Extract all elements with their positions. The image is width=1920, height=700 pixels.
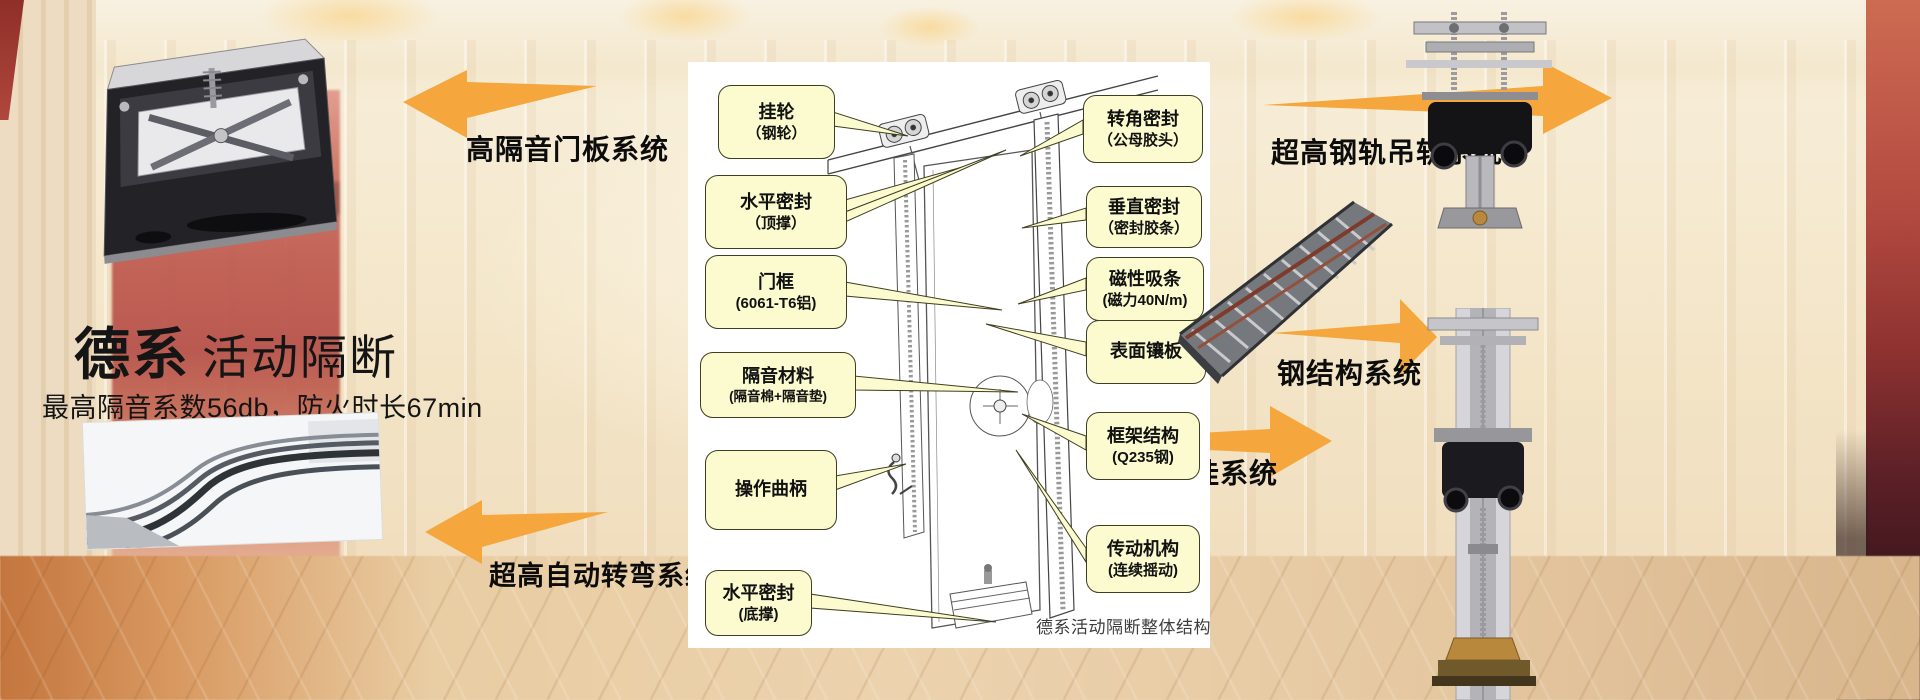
callout-text: (连续摇动) <box>1108 561 1178 581</box>
callout-text: 挂轮 <box>759 101 795 124</box>
diagram-caption: 德系活动隔断整体结构 <box>1036 613 1212 638</box>
callout-text: (Q235钢) <box>1112 448 1174 468</box>
callout-corner-seal: 转角密封 （公母胶头） <box>1083 95 1203 163</box>
alu-rail-hanger-photo <box>1398 308 1566 700</box>
callout-text: （钢轮） <box>746 124 806 144</box>
callout-text: 门框 <box>758 271 794 294</box>
structure-diagram-panel: 挂轮 （钢轮） 水平密封 （顶撑） 门框 (6061-T6铝) 隔音材料 (隔音… <box>688 62 1210 648</box>
callout-text: 转角密封 <box>1107 108 1179 131</box>
alu-rail-hanger-graphic <box>1398 308 1566 700</box>
callout-text: （公母胶头） <box>1098 131 1188 151</box>
steel-rail-hanger-graphic <box>1392 6 1564 238</box>
callout-horizontal-seal-bottom: 水平密封 (底撑) <box>705 570 812 636</box>
callout-text: (6061-T6铝) <box>736 294 817 314</box>
callout-operating-crank: 操作曲柄 <box>705 450 837 530</box>
callout-drive-mechanism: 传动机构 (连续摇动) <box>1086 525 1200 593</box>
label-door-panel-system: 高隔音门板系统 <box>466 128 669 168</box>
callout-text: 隔音材料 <box>742 365 814 388</box>
callout-text: (隔音棉+隔音垫) <box>729 388 827 406</box>
callout-text: （顶撑） <box>746 214 806 234</box>
callout-horizontal-seal-top: 水平密封 （顶撑） <box>705 175 847 249</box>
steel-structure-graphic <box>1178 192 1396 384</box>
callout-text: 表面镶板 <box>1110 340 1182 363</box>
callout-door-frame: 门框 (6061-T6铝) <box>705 255 847 329</box>
callout-text: 水平密封 <box>740 191 812 214</box>
hero-title: 德系 活动隔断 <box>74 310 398 391</box>
callout-text: 磁性吸条 <box>1109 268 1181 291</box>
infographic-poster: 德系 活动隔断 最高隔音系数56db，防火时长67min 高隔音门板系统 超高自… <box>0 0 1920 700</box>
callout-text: 传动机构 <box>1107 538 1179 561</box>
steel-rail-hanger-photo <box>1392 6 1564 238</box>
callout-text: 水平密封 <box>723 582 795 605</box>
callout-text: （密封胶条） <box>1099 219 1189 239</box>
callout-text: 垂直密封 <box>1108 196 1180 219</box>
callout-frame-structure: 框架结构 (Q235钢) <box>1086 412 1200 480</box>
callout-hanging-wheel: 挂轮 （钢轮） <box>718 85 835 159</box>
steel-structure-photo <box>1178 192 1396 384</box>
brand-name: 德系 <box>74 310 190 391</box>
callout-sound-insulation: 隔音材料 (隔音棉+隔音垫) <box>700 352 856 418</box>
door-panel-product-photo <box>86 4 344 266</box>
label-auto-turn-system: 超高自动转弯系统 <box>489 554 713 593</box>
callout-text: (底撑) <box>739 605 779 625</box>
callout-text: 框架结构 <box>1107 425 1179 448</box>
product-name: 活动隔断 <box>202 319 398 388</box>
curved-track-photo-graphic <box>83 413 382 549</box>
callout-text: 操作曲柄 <box>735 478 807 501</box>
callout-text: (磁力40N/m) <box>1102 291 1187 311</box>
curved-track-product-photo <box>83 413 382 549</box>
door-panel-photo-graphic <box>86 4 344 266</box>
